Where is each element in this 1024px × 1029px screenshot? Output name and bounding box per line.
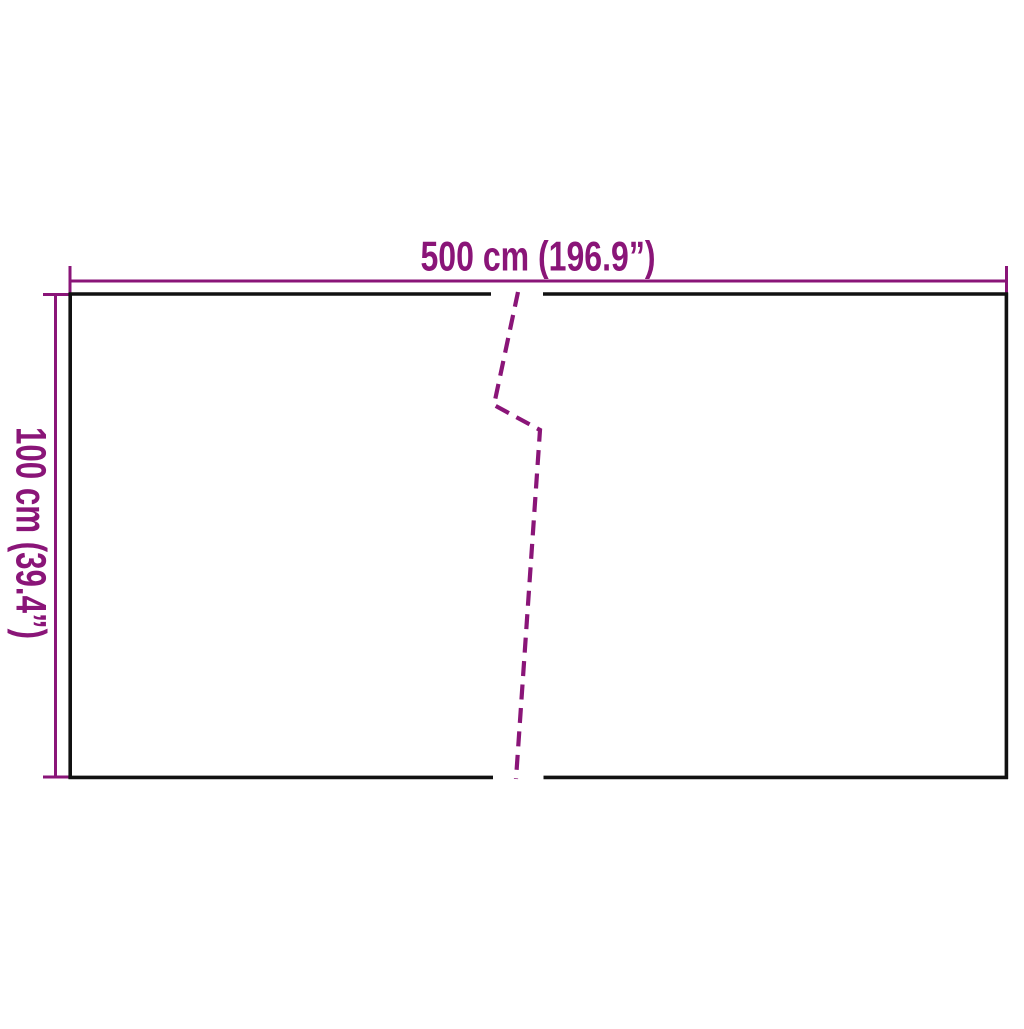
svg-text:500 cm (196.9”): 500 cm (196.9”) (421, 233, 656, 280)
svg-text:100 cm (39.4”): 100 cm (39.4”) (7, 427, 54, 639)
